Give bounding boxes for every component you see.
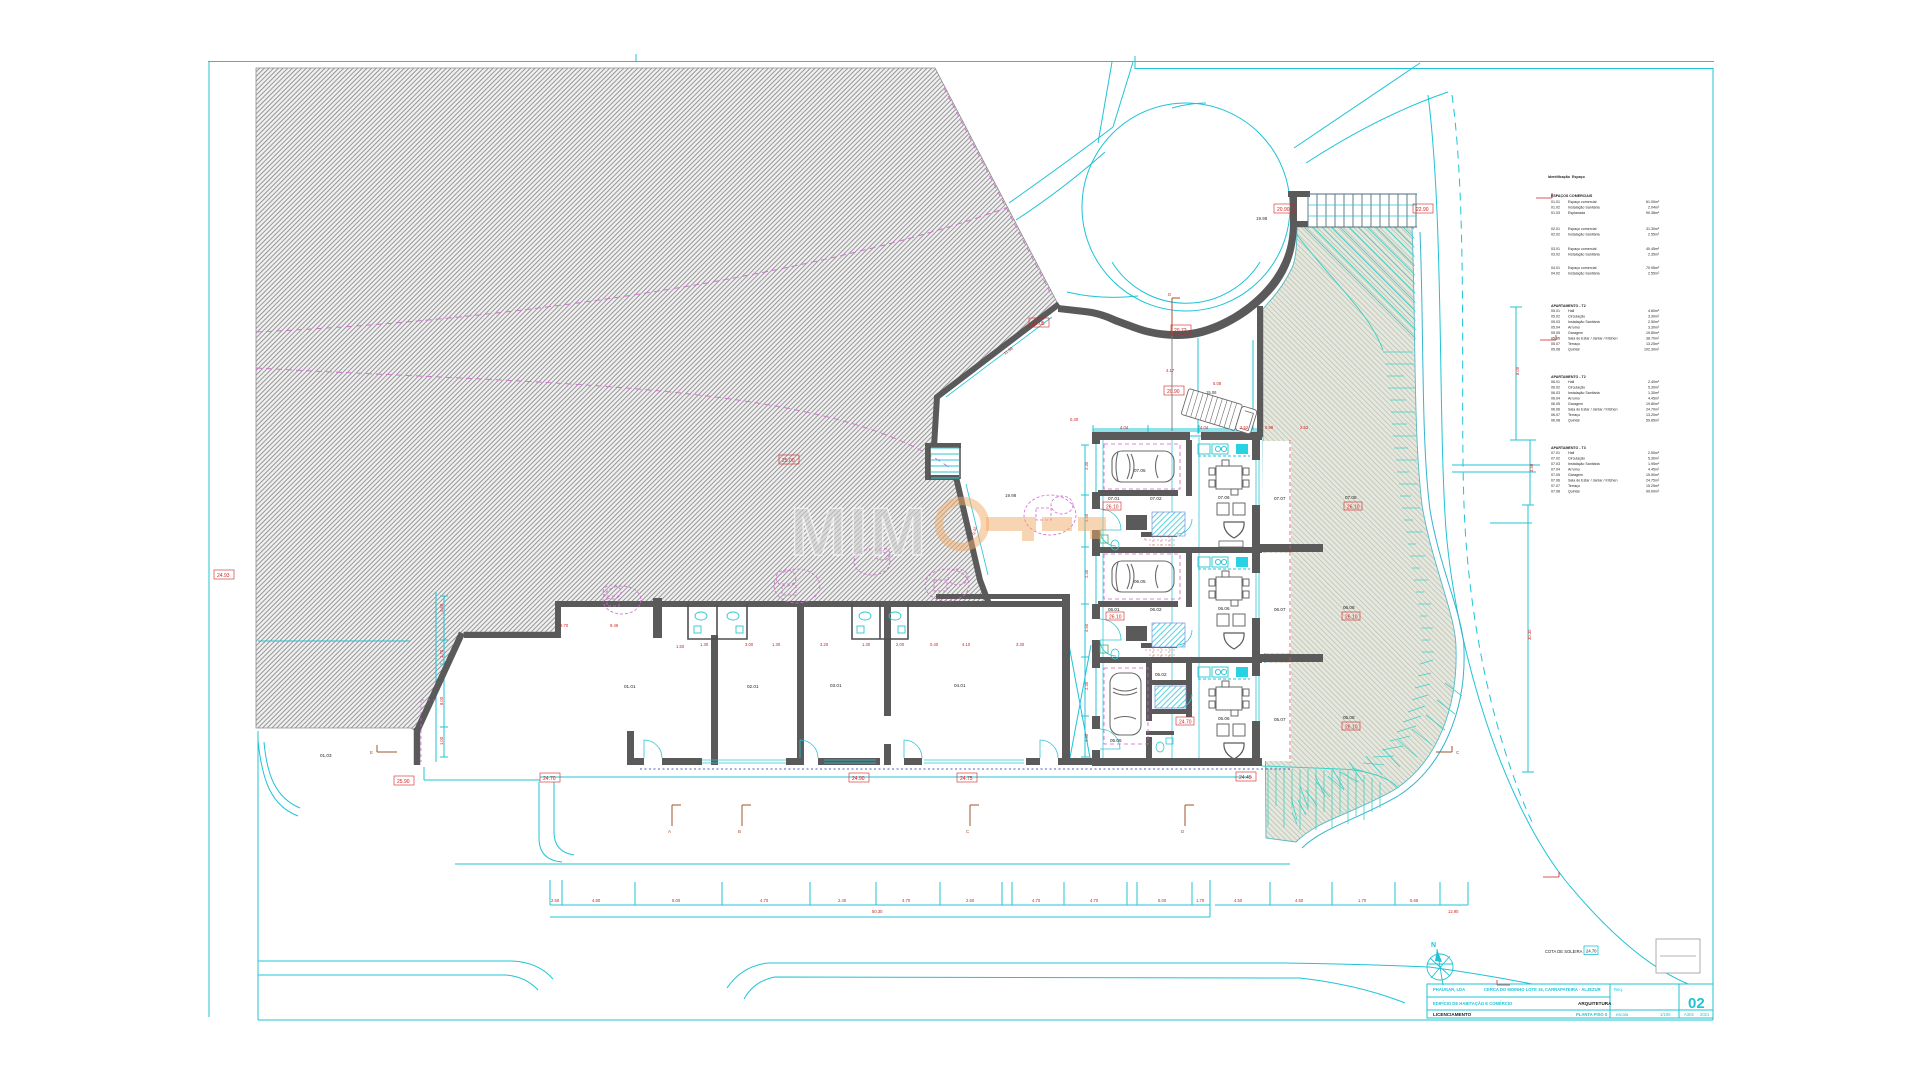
svg-text:19.80m²: 19.80m² bbox=[1646, 402, 1660, 406]
svg-text:1.30m²: 1.30m² bbox=[1648, 391, 1660, 395]
svg-text:Req.: Req. bbox=[1614, 987, 1623, 992]
svg-text:06.01: 06.01 bbox=[1108, 607, 1120, 612]
svg-text:01.03: 01.03 bbox=[320, 753, 332, 758]
svg-text:04.02: 04.02 bbox=[1551, 272, 1560, 276]
svg-text:05.05: 05.05 bbox=[1551, 331, 1560, 335]
svg-text:Espaço: Espaço bbox=[1572, 175, 1586, 179]
svg-text:1.30: 1.30 bbox=[700, 642, 709, 647]
svg-text:03.01: 03.01 bbox=[830, 683, 842, 688]
svg-text:N: N bbox=[1431, 942, 1436, 949]
svg-text:2.50: 2.50 bbox=[966, 898, 975, 903]
svg-text:Esplanada: Esplanada bbox=[1568, 211, 1585, 215]
svg-text:4.04: 4.04 bbox=[1200, 425, 1209, 430]
svg-text:06.02: 06.02 bbox=[1150, 607, 1162, 612]
svg-text:4.70: 4.70 bbox=[1090, 898, 1099, 903]
svg-text:Circulação: Circulação bbox=[1568, 315, 1585, 319]
svg-text:26.10: 26.10 bbox=[1345, 615, 1358, 621]
svg-text:Espaço comercial: Espaço comercial bbox=[1568, 247, 1597, 251]
svg-text:13.20m²: 13.20m² bbox=[1646, 413, 1660, 417]
svg-text:2.55m²: 2.55m² bbox=[1648, 233, 1660, 237]
svg-text:4.50: 4.50 bbox=[1084, 623, 1089, 632]
svg-text:2.30: 2.30 bbox=[1084, 681, 1089, 690]
svg-text:Instalação Sanitária: Instalação Sanitária bbox=[1568, 233, 1600, 237]
svg-text:24.93: 24.93 bbox=[217, 573, 230, 579]
svg-text:04.01: 04.01 bbox=[954, 683, 966, 688]
svg-text:2021: 2021 bbox=[1700, 1012, 1710, 1017]
svg-text:4.45m²: 4.45m² bbox=[1648, 397, 1660, 401]
svg-text:A302: A302 bbox=[1684, 1012, 1694, 1017]
svg-text:5.30m²: 5.30m² bbox=[1648, 386, 1660, 390]
svg-text:2.50: 2.50 bbox=[551, 898, 560, 903]
svg-text:25.05: 25.05 bbox=[1032, 321, 1045, 327]
svg-text:Garagem: Garagem bbox=[1568, 473, 1583, 477]
svg-text:3.20: 3.20 bbox=[820, 642, 829, 647]
svg-text:5.08: 5.08 bbox=[1213, 381, 1222, 386]
svg-text:13.25m²: 13.25m² bbox=[1646, 342, 1660, 346]
svg-text:0.30: 0.30 bbox=[1070, 417, 1079, 422]
svg-text:1.30: 1.30 bbox=[862, 642, 871, 647]
svg-text:26.10: 26.10 bbox=[1347, 505, 1360, 511]
svg-text:05.07: 05.07 bbox=[1274, 717, 1286, 722]
svg-text:1.00: 1.00 bbox=[439, 736, 444, 745]
svg-text:Garagem: Garagem bbox=[1568, 402, 1583, 406]
svg-text:Arrumo: Arrumo bbox=[1568, 397, 1580, 401]
svg-text:05.08: 05.08 bbox=[1343, 715, 1355, 720]
svg-text:Instalação Sanitária: Instalação Sanitária bbox=[1568, 272, 1600, 276]
svg-text:2.35m²: 2.35m² bbox=[1648, 253, 1660, 257]
svg-text:2.50m²: 2.50m² bbox=[1648, 320, 1660, 324]
svg-text:9.70: 9.70 bbox=[560, 623, 569, 628]
svg-text:Circulação: Circulação bbox=[1568, 457, 1585, 461]
svg-text:07.04: 07.04 bbox=[1551, 468, 1560, 472]
svg-text:01.01: 01.01 bbox=[1551, 200, 1560, 204]
svg-text:3.30m²: 3.30m² bbox=[1648, 315, 1660, 319]
svg-text:24.45: 24.45 bbox=[1239, 775, 1252, 781]
svg-text:07.07: 07.07 bbox=[1551, 484, 1560, 488]
svg-text:E: E bbox=[370, 750, 373, 755]
svg-text:19.98: 19.98 bbox=[1005, 493, 1017, 498]
svg-text:4.50: 4.50 bbox=[1084, 733, 1089, 742]
svg-text:24.70: 24.70 bbox=[543, 776, 556, 782]
svg-text:31.30m²: 31.30m² bbox=[1646, 227, 1660, 231]
svg-text:3.50: 3.50 bbox=[1529, 463, 1534, 472]
svg-text:06.08: 06.08 bbox=[1551, 419, 1560, 423]
svg-text:escala: escala bbox=[1616, 1012, 1629, 1017]
svg-text:20.72: 20.72 bbox=[1174, 328, 1187, 334]
svg-text:20.90: 20.90 bbox=[1167, 389, 1180, 395]
svg-text:4.70: 4.70 bbox=[1032, 898, 1041, 903]
svg-text:30.30: 30.30 bbox=[1527, 629, 1532, 640]
svg-text:26.10: 26.10 bbox=[1106, 505, 1119, 511]
svg-text:4.60: 4.60 bbox=[439, 603, 444, 612]
svg-text:06.03: 06.03 bbox=[1551, 391, 1560, 395]
svg-text:15.06: 15.06 bbox=[1206, 390, 1217, 395]
svg-text:1.70: 1.70 bbox=[439, 649, 444, 658]
svg-text:26.10: 26.10 bbox=[1109, 615, 1122, 621]
svg-text:05.01: 05.01 bbox=[1551, 309, 1560, 313]
svg-text:24.75m²: 24.75m² bbox=[1646, 479, 1660, 483]
svg-text:Hall: Hall bbox=[1568, 451, 1574, 455]
svg-text:03.02: 03.02 bbox=[1551, 253, 1560, 257]
svg-text:Sala de Estar / Jantar / Kitch: Sala de Estar / Jantar / Kitchen bbox=[1568, 479, 1618, 483]
svg-text:4.70: 4.70 bbox=[760, 898, 769, 903]
svg-text:Instalação Sanitária: Instalação Sanitária bbox=[1568, 462, 1600, 466]
svg-text:06.04: 06.04 bbox=[1551, 397, 1560, 401]
svg-text:07.08: 07.08 bbox=[1345, 495, 1357, 500]
svg-text:1.95m²: 1.95m² bbox=[1648, 462, 1660, 466]
svg-text:06.05: 06.05 bbox=[1551, 402, 1560, 406]
svg-text:06.06: 06.06 bbox=[1551, 408, 1560, 412]
svg-text:4.04: 4.04 bbox=[1120, 425, 1129, 430]
svg-text:04.01: 04.01 bbox=[1551, 266, 1560, 270]
svg-text:24.70m²: 24.70m² bbox=[1646, 408, 1660, 412]
svg-text:PHAUGAR, LDA: PHAUGAR, LDA bbox=[1433, 987, 1465, 992]
svg-text:24.70: 24.70 bbox=[1179, 720, 1192, 726]
svg-text:4.80: 4.80 bbox=[592, 898, 601, 903]
svg-text:1.70: 1.70 bbox=[1358, 898, 1367, 903]
svg-text:07.03: 07.03 bbox=[1551, 462, 1560, 466]
svg-text:05.07: 05.07 bbox=[1551, 342, 1560, 346]
svg-text:Terraço: Terraço bbox=[1568, 484, 1580, 488]
svg-text:07.05: 07.05 bbox=[1134, 468, 1146, 473]
svg-text:Arrumo: Arrumo bbox=[1568, 326, 1580, 330]
svg-text:03.01: 03.01 bbox=[1551, 247, 1560, 251]
svg-text:9.46: 9.46 bbox=[610, 623, 619, 628]
svg-text:07.02: 07.02 bbox=[1150, 496, 1162, 501]
svg-text:19.98: 19.98 bbox=[1256, 216, 1268, 221]
svg-text:15.25m²: 15.25m² bbox=[1646, 484, 1660, 488]
svg-text:1/100: 1/100 bbox=[1660, 1012, 1671, 1017]
svg-text:8.00: 8.00 bbox=[1515, 366, 1520, 375]
svg-text:4.50: 4.50 bbox=[1234, 898, 1243, 903]
svg-text:0.40: 0.40 bbox=[930, 642, 939, 647]
svg-text:3.30: 3.30 bbox=[1016, 642, 1025, 647]
svg-text:06.07: 06.07 bbox=[1551, 413, 1560, 417]
svg-text:99.00m²: 99.00m² bbox=[1646, 490, 1660, 494]
svg-text:05.06: 05.06 bbox=[1218, 716, 1230, 721]
svg-text:APARTAMENTO - T2: APARTAMENTO - T2 bbox=[1551, 304, 1586, 308]
svg-text:2.30: 2.30 bbox=[1084, 569, 1089, 578]
svg-text:APARTAMENTO - T3: APARTAMENTO - T3 bbox=[1551, 446, 1586, 450]
svg-text:4.17: 4.17 bbox=[1166, 368, 1175, 373]
svg-text:Quintal: Quintal bbox=[1568, 419, 1580, 423]
svg-text:Espaço comercial: Espaço comercial bbox=[1568, 200, 1597, 204]
svg-text:05.04: 05.04 bbox=[1551, 326, 1560, 330]
svg-text:06.02: 06.02 bbox=[1551, 386, 1560, 390]
svg-text:EDIFÍCIO DE HABITAÇÃO E COMÉRC: EDIFÍCIO DE HABITAÇÃO E COMÉRCIO bbox=[1433, 1001, 1513, 1006]
svg-text:02.01: 02.01 bbox=[747, 684, 759, 689]
svg-text:Quintal: Quintal bbox=[1568, 348, 1580, 352]
svg-text:LICENCIAMENTO: LICENCIAMENTO bbox=[1433, 1012, 1472, 1017]
svg-text:61.00m²: 61.00m² bbox=[1646, 200, 1660, 204]
svg-text:COTA DE SOLEIRA: COTA DE SOLEIRA bbox=[1545, 949, 1583, 954]
svg-text:05.06: 05.06 bbox=[1551, 337, 1560, 341]
svg-text:07.07: 07.07 bbox=[1274, 496, 1286, 501]
svg-text:2.04m²: 2.04m² bbox=[1648, 206, 1660, 210]
svg-text:4.10: 4.10 bbox=[962, 642, 971, 647]
svg-text:22.90: 22.90 bbox=[1416, 207, 1429, 213]
svg-text:07.05: 07.05 bbox=[1551, 473, 1560, 477]
svg-text:5.30m²: 5.30m² bbox=[1648, 457, 1660, 461]
svg-text:05.08: 05.08 bbox=[1551, 348, 1560, 352]
svg-text:Circulação: Circulação bbox=[1568, 386, 1585, 390]
svg-text:ESPAÇOS COMERCIAIS: ESPAÇOS COMERCIAIS bbox=[1551, 194, 1593, 198]
svg-text:01.03: 01.03 bbox=[1551, 211, 1560, 215]
svg-text:Hall: Hall bbox=[1568, 380, 1574, 384]
svg-text:1.30: 1.30 bbox=[772, 642, 781, 647]
svg-text:05.03: 05.03 bbox=[1551, 320, 1560, 324]
svg-text:Hall: Hall bbox=[1568, 309, 1574, 313]
svg-text:05.05: 05.05 bbox=[1110, 738, 1122, 743]
svg-text:05.02: 05.02 bbox=[1551, 315, 1560, 319]
svg-text:4.60m²: 4.60m² bbox=[1648, 309, 1660, 313]
svg-text:0.98: 0.98 bbox=[1265, 425, 1274, 430]
svg-text:5.00: 5.00 bbox=[672, 898, 681, 903]
svg-text:07.08: 07.08 bbox=[1551, 490, 1560, 494]
svg-text:Instalação Sanitária: Instalação Sanitária bbox=[1568, 320, 1600, 324]
svg-text:2.52: 2.52 bbox=[1240, 425, 1249, 430]
svg-text:3.30m²: 3.30m² bbox=[1648, 326, 1660, 330]
svg-text:2.40m²: 2.40m² bbox=[1648, 380, 1660, 384]
svg-text:02.02: 02.02 bbox=[1551, 233, 1560, 237]
svg-text:Sala de Estar / Jantar / Kitch: Sala de Estar / Jantar / Kitchen bbox=[1568, 408, 1618, 412]
svg-text:07.06: 07.06 bbox=[1551, 479, 1560, 483]
svg-text:38.70m²: 38.70m² bbox=[1646, 337, 1660, 341]
svg-text:Garagem: Garagem bbox=[1568, 331, 1583, 335]
svg-text:Espaço comercial: Espaço comercial bbox=[1568, 266, 1597, 270]
svg-text:2.00: 2.00 bbox=[896, 642, 905, 647]
svg-text:APARTAMENTO - T2: APARTAMENTO - T2 bbox=[1551, 375, 1586, 379]
svg-text:70.95m²: 70.95m² bbox=[1646, 266, 1660, 270]
svg-text:06.05: 06.05 bbox=[1134, 579, 1146, 584]
svg-text:Terraço: Terraço bbox=[1568, 413, 1580, 417]
svg-text:MIM: MIM bbox=[790, 494, 928, 570]
svg-text:8.00: 8.00 bbox=[439, 696, 444, 705]
svg-text:2.52: 2.52 bbox=[1300, 425, 1309, 430]
svg-text:5.65: 5.65 bbox=[1410, 898, 1419, 903]
svg-text:19.80m²: 19.80m² bbox=[1646, 331, 1660, 335]
svg-text:2.30: 2.30 bbox=[1084, 461, 1089, 470]
svg-text:07.02: 07.02 bbox=[1551, 457, 1560, 461]
svg-text:Identificação: Identificação bbox=[1548, 175, 1571, 179]
svg-text:2.55m²: 2.55m² bbox=[1648, 272, 1660, 276]
svg-text:90.38m²: 90.38m² bbox=[1646, 211, 1660, 215]
svg-text:15.50m²: 15.50m² bbox=[1646, 473, 1660, 477]
svg-text:2.40: 2.40 bbox=[838, 898, 847, 903]
svg-text:5.00: 5.00 bbox=[1158, 898, 1167, 903]
svg-text:20.90: 20.90 bbox=[1277, 207, 1290, 213]
svg-text:02.01: 02.01 bbox=[1551, 227, 1560, 231]
svg-text:12.90: 12.90 bbox=[1448, 909, 1459, 914]
svg-text:07.01: 07.01 bbox=[1551, 451, 1560, 455]
svg-text:40.45m²: 40.45m² bbox=[1646, 247, 1660, 251]
svg-text:01.01: 01.01 bbox=[624, 684, 636, 689]
svg-text:B: B bbox=[738, 829, 741, 834]
svg-text:Instalação Sanitária: Instalação Sanitária bbox=[1568, 391, 1600, 395]
svg-text:Espaço comercial: Espaço comercial bbox=[1568, 227, 1597, 231]
svg-text:4.70: 4.70 bbox=[902, 898, 911, 903]
svg-text:Arrumo: Arrumo bbox=[1568, 468, 1580, 472]
svg-text:2.50m²: 2.50m² bbox=[1648, 451, 1660, 455]
svg-text:02: 02 bbox=[1688, 995, 1705, 1012]
svg-text:PLANTA PISO 0: PLANTA PISO 0 bbox=[1576, 1012, 1608, 1017]
svg-text:59.85m²: 59.85m² bbox=[1646, 419, 1660, 423]
svg-text:24.75: 24.75 bbox=[960, 776, 973, 782]
svg-text:06.07: 06.07 bbox=[1274, 607, 1286, 612]
svg-text:05.02: 05.02 bbox=[1155, 672, 1167, 677]
svg-text:06.06: 06.06 bbox=[1218, 606, 1230, 611]
svg-text:CERCA DO MOINHO LOTE 15, CARRA: CERCA DO MOINHO LOTE 15, CARRAPATEIRA - … bbox=[1484, 987, 1601, 992]
svg-text:24.70: 24.70 bbox=[1586, 949, 1597, 954]
svg-text:Sala de Estar / Jantar / Kitch: Sala de Estar / Jantar / Kitchen bbox=[1568, 337, 1618, 341]
svg-text:06.08: 06.08 bbox=[1343, 605, 1355, 610]
svg-text:06.01: 06.01 bbox=[1551, 380, 1560, 384]
svg-text:ARQUITETURA: ARQUITETURA bbox=[1578, 1001, 1612, 1006]
svg-text:102.30m²: 102.30m² bbox=[1644, 348, 1660, 352]
svg-text:4.45m²: 4.45m² bbox=[1648, 468, 1660, 472]
svg-text:26.10: 26.10 bbox=[1345, 725, 1358, 731]
svg-text:Instalação Sanitária: Instalação Sanitária bbox=[1568, 253, 1600, 257]
svg-text:07.06: 07.06 bbox=[1218, 495, 1230, 500]
svg-text:24.90: 24.90 bbox=[852, 776, 865, 782]
svg-text:A: A bbox=[668, 829, 671, 834]
svg-text:3.00: 3.00 bbox=[745, 642, 754, 647]
svg-text:07.01: 07.01 bbox=[1108, 496, 1120, 501]
svg-text:01.02: 01.02 bbox=[1551, 206, 1560, 210]
svg-text:Quintal: Quintal bbox=[1568, 490, 1580, 494]
svg-text:4.50: 4.50 bbox=[1295, 898, 1304, 903]
svg-text:1.50: 1.50 bbox=[676, 644, 685, 649]
svg-text:25.90: 25.90 bbox=[397, 779, 410, 785]
svg-text:Terraço: Terraço bbox=[1568, 342, 1580, 346]
svg-text:1.70: 1.70 bbox=[1196, 898, 1205, 903]
svg-text:Instalação Sanitária: Instalação Sanitária bbox=[1568, 206, 1600, 210]
svg-text:50.30: 50.30 bbox=[872, 909, 883, 914]
svg-text:25.00: 25.00 bbox=[782, 458, 795, 464]
